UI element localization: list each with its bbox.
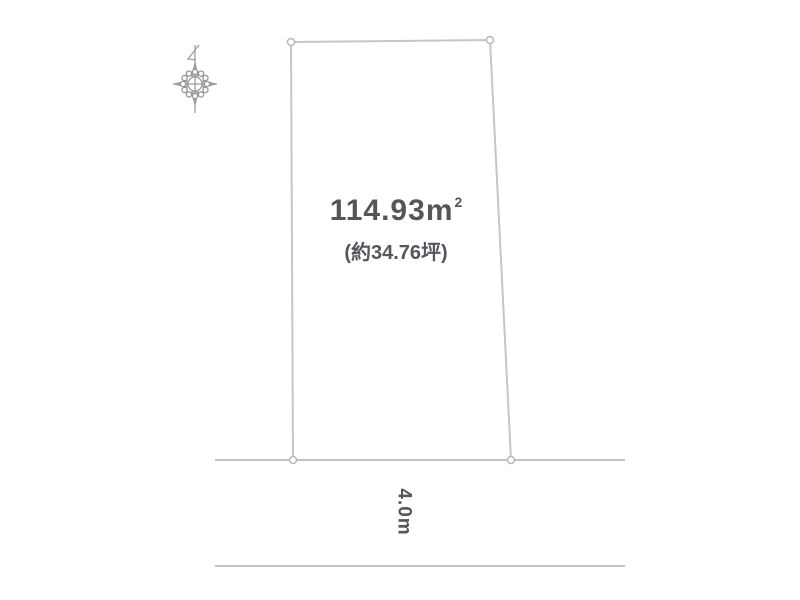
survey-point-marker [290,457,297,464]
plot-area-superscript: 2 [455,194,463,210]
land-plot-diagram: 114.93m2 (約34.76坪) 4.0m [0,0,800,600]
plot-area-unit: m [426,194,454,227]
compass-north-icon [173,45,217,113]
plot-area-tsubo-label: (約34.76坪) [246,243,546,263]
survey-point-marker [487,37,494,44]
survey-point-marker [508,457,515,464]
plot-area-label: 114.93m2 [246,196,546,226]
survey-point-marker [288,39,295,46]
road-frontage-label: 4.0m [395,488,414,535]
plot-area-value: 114.93 [330,194,426,227]
